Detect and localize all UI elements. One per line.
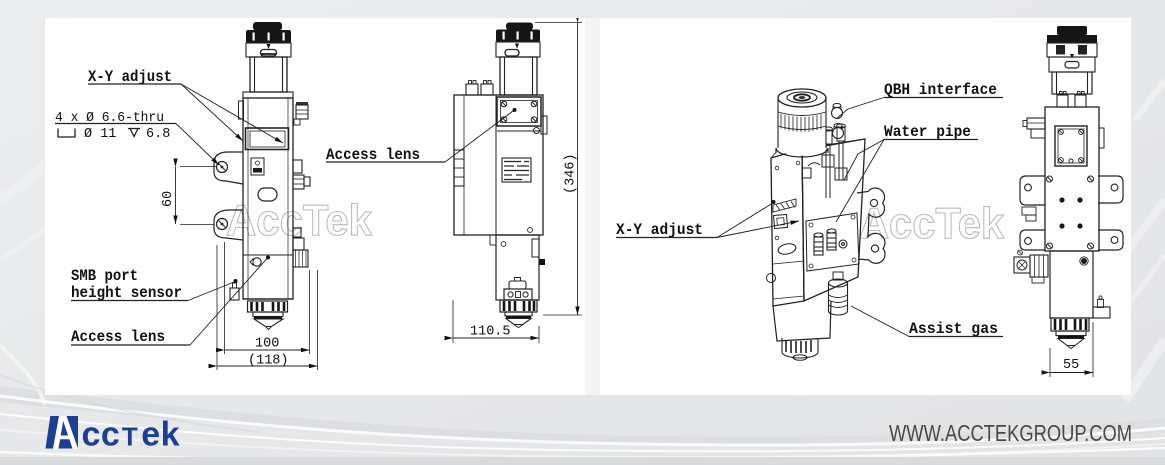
svg-text:QBH interface: QBH interface — [884, 81, 997, 99]
svg-text:100: 100 — [255, 337, 279, 352]
svg-text:Assist gas: Assist gas — [909, 320, 998, 338]
svg-text:Access lens: Access lens — [71, 328, 165, 346]
svg-text:AccTek: AccTek — [859, 199, 1004, 248]
svg-text:Water pipe: Water pipe — [884, 123, 971, 141]
svg-text:height sensor: height sensor — [71, 284, 182, 302]
svg-text:6.8: 6.8 — [146, 127, 170, 142]
svg-text:ccTek: ccTek — [82, 416, 181, 454]
svg-text:(346): (346) — [564, 153, 579, 194]
svg-text:Ø 11: Ø 11 — [84, 127, 116, 142]
svg-text:SMB port: SMB port — [71, 267, 138, 285]
svg-text:110.5: 110.5 — [470, 325, 511, 340]
svg-text:X-Y adjust: X-Y adjust — [616, 221, 703, 239]
svg-text:60: 60 — [161, 191, 176, 207]
svg-text:Access lens: Access lens — [326, 146, 420, 164]
svg-text:X-Y adjust: X-Y adjust — [88, 68, 172, 86]
svg-text:55: 55 — [1063, 358, 1079, 373]
svg-text:(118): (118) — [248, 354, 289, 369]
